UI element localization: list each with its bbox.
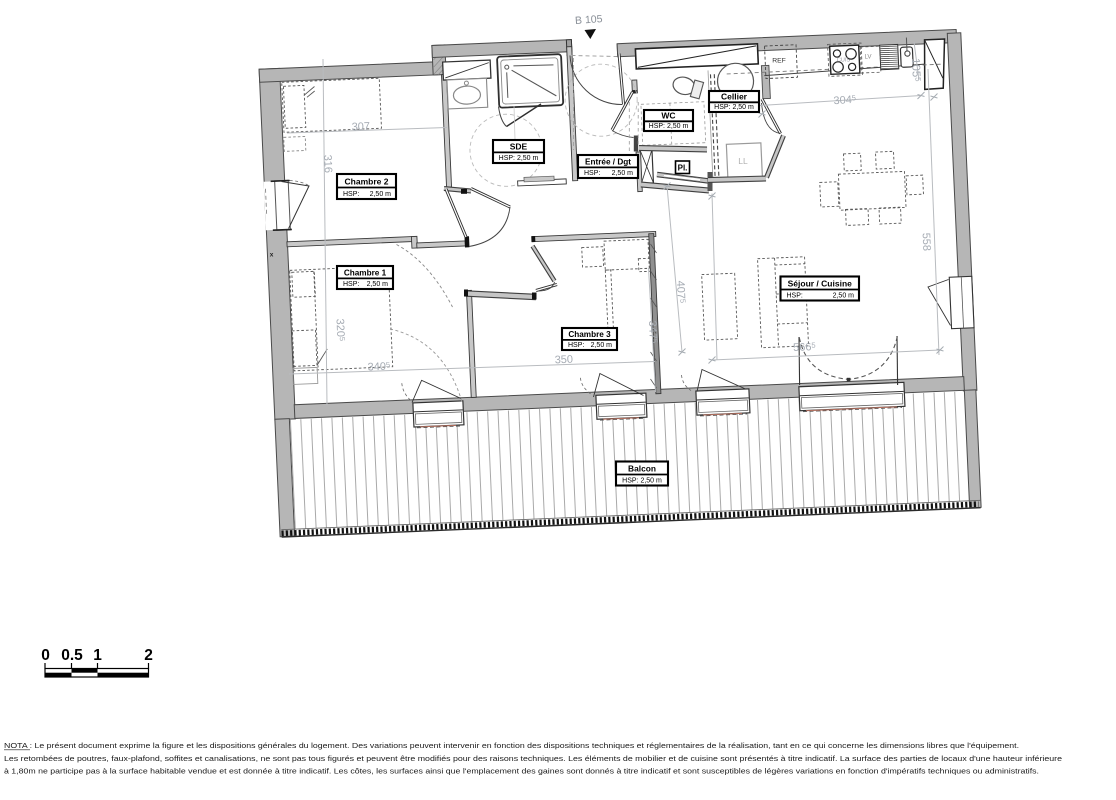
- svg-text:CUIS: CUIS: [837, 58, 850, 64]
- svg-text:Balcon: Balcon: [628, 464, 656, 474]
- svg-text:HSP:: HSP:: [584, 170, 600, 177]
- svg-text:2,50 m: 2,50 m: [367, 281, 389, 288]
- svg-text:316: 316: [321, 154, 334, 173]
- svg-text:Entrée / Dgt: Entrée / Dgt: [585, 157, 631, 166]
- svg-text:558: 558: [920, 232, 933, 251]
- svg-text:2,50 m: 2,50 m: [612, 170, 634, 177]
- svg-text:1: 1: [93, 647, 102, 664]
- svg-text:Chambre 2: Chambre 2: [345, 177, 389, 187]
- svg-text:307: 307: [351, 121, 370, 134]
- svg-text:x: x: [270, 252, 274, 259]
- svg-text:0.5: 0.5: [61, 647, 83, 664]
- svg-text:B 105: B 105: [575, 13, 603, 27]
- svg-text:2: 2: [144, 647, 153, 664]
- svg-text:HSP:: HSP:: [343, 281, 359, 288]
- svg-text:Chambre 3: Chambre 3: [568, 330, 611, 339]
- svg-text:WC: WC: [661, 110, 675, 120]
- svg-text:NOTA : Le présent document exp: NOTA : Le présent document exprime la fi…: [4, 741, 1019, 750]
- svg-text:Séjour / Cuisine: Séjour / Cuisine: [788, 279, 853, 289]
- svg-text:HSP: 2,50 m: HSP: 2,50 m: [499, 155, 539, 162]
- svg-text:HSP: 2,50 m: HSP: 2,50 m: [622, 477, 662, 484]
- svg-text:0: 0: [41, 647, 50, 664]
- svg-text:2,50 m: 2,50 m: [370, 191, 392, 198]
- svg-text:Chambre 1: Chambre 1: [344, 268, 387, 277]
- svg-text:Pl.: Pl.: [678, 164, 688, 173]
- svg-text:LL: LL: [738, 156, 748, 166]
- svg-text:HSP: 2,50 m: HSP: 2,50 m: [714, 104, 754, 111]
- svg-text:HSP:: HSP:: [787, 292, 803, 299]
- svg-text:350: 350: [554, 354, 573, 367]
- svg-text:HSP: 2,50 m: HSP: 2,50 m: [649, 123, 689, 130]
- svg-text:HSP:: HSP:: [568, 342, 584, 349]
- svg-text:SDE: SDE: [510, 141, 528, 151]
- svg-text:Cellier: Cellier: [721, 91, 748, 101]
- svg-text:à 1,80m ne participe pas à la: à 1,80m ne participe pas à la surface ha…: [4, 767, 1039, 776]
- svg-text:HSP:: HSP:: [343, 191, 359, 198]
- svg-text:2,50 m: 2,50 m: [833, 292, 855, 299]
- svg-text:2,50 m: 2,50 m: [591, 342, 613, 349]
- svg-text:REF: REF: [772, 58, 786, 65]
- svg-text:LV: LV: [864, 54, 872, 61]
- svg-text:Les retombées de poutres, faux: Les retombées de poutres, faux-plafond, …: [4, 754, 1062, 763]
